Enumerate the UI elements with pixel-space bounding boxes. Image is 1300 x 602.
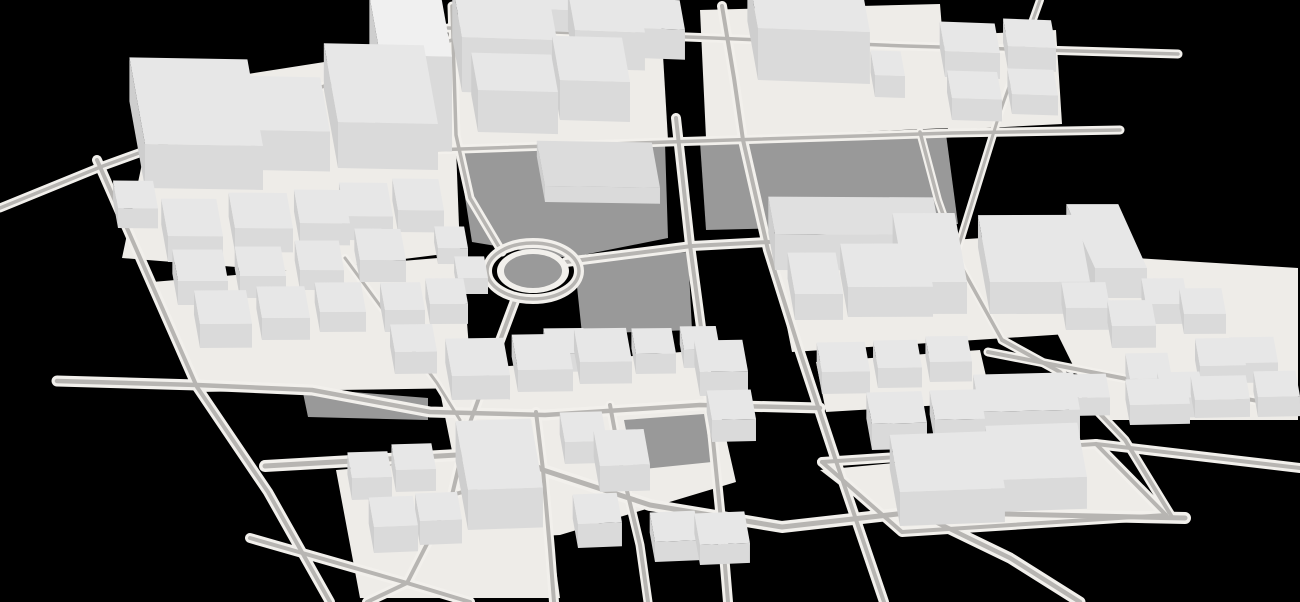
building-roof — [434, 226, 468, 248]
building — [415, 492, 462, 545]
building-roof — [574, 328, 632, 362]
building-south-face — [1258, 396, 1300, 417]
building — [1107, 300, 1156, 348]
building-south-face — [255, 130, 330, 171]
building-roof — [1195, 338, 1246, 366]
building-south-face — [338, 122, 438, 170]
building — [817, 342, 870, 394]
building-roof — [229, 193, 293, 229]
building — [512, 334, 573, 392]
building-south-face — [360, 260, 406, 282]
building-south-face — [848, 287, 933, 317]
building-south-face — [430, 304, 468, 324]
building-roof — [1003, 18, 1056, 47]
building-roof — [930, 389, 985, 420]
building — [650, 511, 700, 562]
building-roof — [1125, 378, 1190, 405]
building-south-face — [578, 522, 622, 548]
building-south-face — [1130, 404, 1190, 425]
building-roof — [973, 372, 1080, 412]
building-south-face — [518, 369, 573, 392]
building-south-face — [758, 28, 870, 84]
building-roof — [194, 290, 252, 324]
building-roof — [788, 253, 843, 294]
building-south-face — [822, 371, 870, 394]
roundabout-island — [504, 254, 562, 288]
building-south-face — [655, 540, 700, 562]
building-roof — [425, 278, 468, 304]
building-roof — [161, 199, 223, 237]
building-roof — [390, 324, 437, 352]
building-roof — [1107, 300, 1156, 326]
building-south-face — [420, 519, 462, 545]
building-roof — [512, 334, 573, 370]
building — [594, 429, 650, 492]
building — [390, 324, 437, 374]
building-south-face — [1184, 314, 1226, 334]
building-south-face — [600, 464, 650, 492]
building-south-face — [952, 98, 1002, 121]
building-roof — [940, 21, 1000, 53]
building-roof — [594, 429, 650, 466]
building-roof — [380, 282, 425, 310]
building-south-face — [262, 318, 310, 340]
building — [573, 493, 622, 548]
building-roof — [947, 70, 1002, 99]
building — [1179, 288, 1226, 334]
building-roof — [113, 180, 158, 208]
building-roof — [129, 57, 263, 146]
building — [707, 389, 756, 442]
building-roof — [471, 53, 558, 92]
building — [947, 70, 1002, 121]
building-south-face — [320, 312, 366, 332]
building-south-face — [900, 488, 1005, 526]
building-roof — [631, 328, 676, 354]
building-roof — [235, 246, 286, 276]
building-roof — [172, 249, 228, 281]
building-roof — [1061, 282, 1110, 308]
building-roof — [817, 342, 870, 372]
building — [552, 36, 630, 122]
building-south-face — [875, 75, 905, 98]
building-roof — [452, 0, 557, 40]
building-south-face — [1066, 308, 1110, 330]
building-south-face — [468, 487, 543, 530]
building-roof — [445, 338, 510, 376]
building-roof — [650, 511, 700, 542]
building-roof — [840, 243, 933, 287]
building — [256, 286, 310, 340]
building-roof — [456, 418, 543, 490]
building — [940, 21, 1000, 79]
building-roof — [315, 282, 366, 312]
building — [840, 243, 933, 317]
building-south-face — [640, 28, 685, 60]
building-roof — [324, 43, 438, 124]
building — [194, 290, 252, 348]
building-south-face — [1195, 399, 1250, 418]
building — [1125, 378, 1190, 425]
building — [229, 193, 293, 253]
building — [324, 43, 438, 170]
building — [456, 418, 543, 530]
building-roof — [871, 50, 905, 76]
building-roof — [694, 340, 748, 372]
building-roof — [415, 492, 462, 521]
building — [631, 328, 676, 374]
building — [129, 57, 263, 190]
building-roof — [1179, 288, 1226, 314]
building — [294, 190, 350, 246]
building-roof — [347, 451, 392, 478]
building-roof — [925, 336, 972, 362]
building-south-face — [1012, 94, 1058, 115]
building-south-face — [118, 208, 158, 228]
building-roof — [694, 511, 750, 545]
building-roof — [573, 493, 622, 524]
building-south-face — [1112, 326, 1156, 348]
building-roof — [354, 229, 406, 261]
building-roof — [552, 36, 630, 82]
building — [445, 338, 510, 400]
building-south-face — [712, 419, 756, 442]
building — [537, 141, 660, 204]
building-south-face — [145, 144, 263, 190]
building-roof — [707, 389, 756, 420]
building-roof — [890, 431, 1005, 492]
building-south-face — [580, 361, 632, 384]
building — [890, 431, 1005, 526]
building-roof — [873, 340, 922, 368]
building-roof — [747, 0, 870, 32]
building-roof — [295, 240, 344, 270]
building-roof — [1191, 375, 1250, 400]
building — [873, 340, 922, 388]
building-south-face — [700, 543, 750, 565]
building-south-face — [452, 375, 510, 400]
building-south-face — [930, 361, 972, 382]
building-south-face — [545, 186, 660, 204]
building — [1003, 18, 1056, 71]
building-roof — [392, 179, 444, 211]
building-roof — [294, 190, 350, 224]
building-south-face — [395, 352, 437, 374]
building — [369, 496, 418, 553]
building-south-face — [396, 469, 436, 492]
building — [315, 282, 366, 332]
building — [925, 336, 972, 382]
building — [391, 443, 436, 492]
building-south-face — [560, 80, 630, 122]
building — [694, 340, 748, 396]
building-roof — [866, 391, 927, 424]
building-roof — [1253, 371, 1300, 397]
building-south-face — [352, 477, 392, 500]
building-south-face — [200, 324, 252, 348]
building-roof — [391, 443, 436, 470]
building — [392, 179, 444, 233]
building — [471, 53, 558, 134]
building — [347, 451, 392, 500]
building-roof — [978, 215, 1090, 282]
building — [871, 50, 905, 98]
building-roof — [568, 0, 645, 33]
building-roof — [537, 141, 660, 188]
building-south-face — [795, 294, 843, 320]
building-south-face — [1008, 46, 1056, 72]
building-roof — [369, 496, 418, 527]
building-south-face — [878, 367, 922, 388]
park-south — [574, 252, 692, 334]
building-south-face — [478, 90, 558, 134]
roundabout — [487, 243, 579, 299]
building — [694, 511, 750, 565]
building — [747, 0, 870, 84]
building — [574, 328, 632, 384]
building — [1253, 371, 1300, 417]
building — [113, 180, 158, 228]
building-south-face — [995, 477, 1087, 512]
building-south-face — [374, 525, 418, 553]
building — [1007, 68, 1058, 115]
map-viewport[interactable] — [0, 0, 1300, 602]
building — [788, 253, 843, 320]
building — [425, 278, 468, 324]
building-roof — [454, 256, 488, 278]
city-map-3d-render — [0, 0, 1300, 602]
building — [354, 229, 406, 283]
building-roof — [256, 286, 310, 318]
building-south-face — [636, 354, 676, 374]
building — [1061, 282, 1110, 330]
building — [1191, 375, 1250, 418]
building-roof — [1007, 68, 1058, 95]
